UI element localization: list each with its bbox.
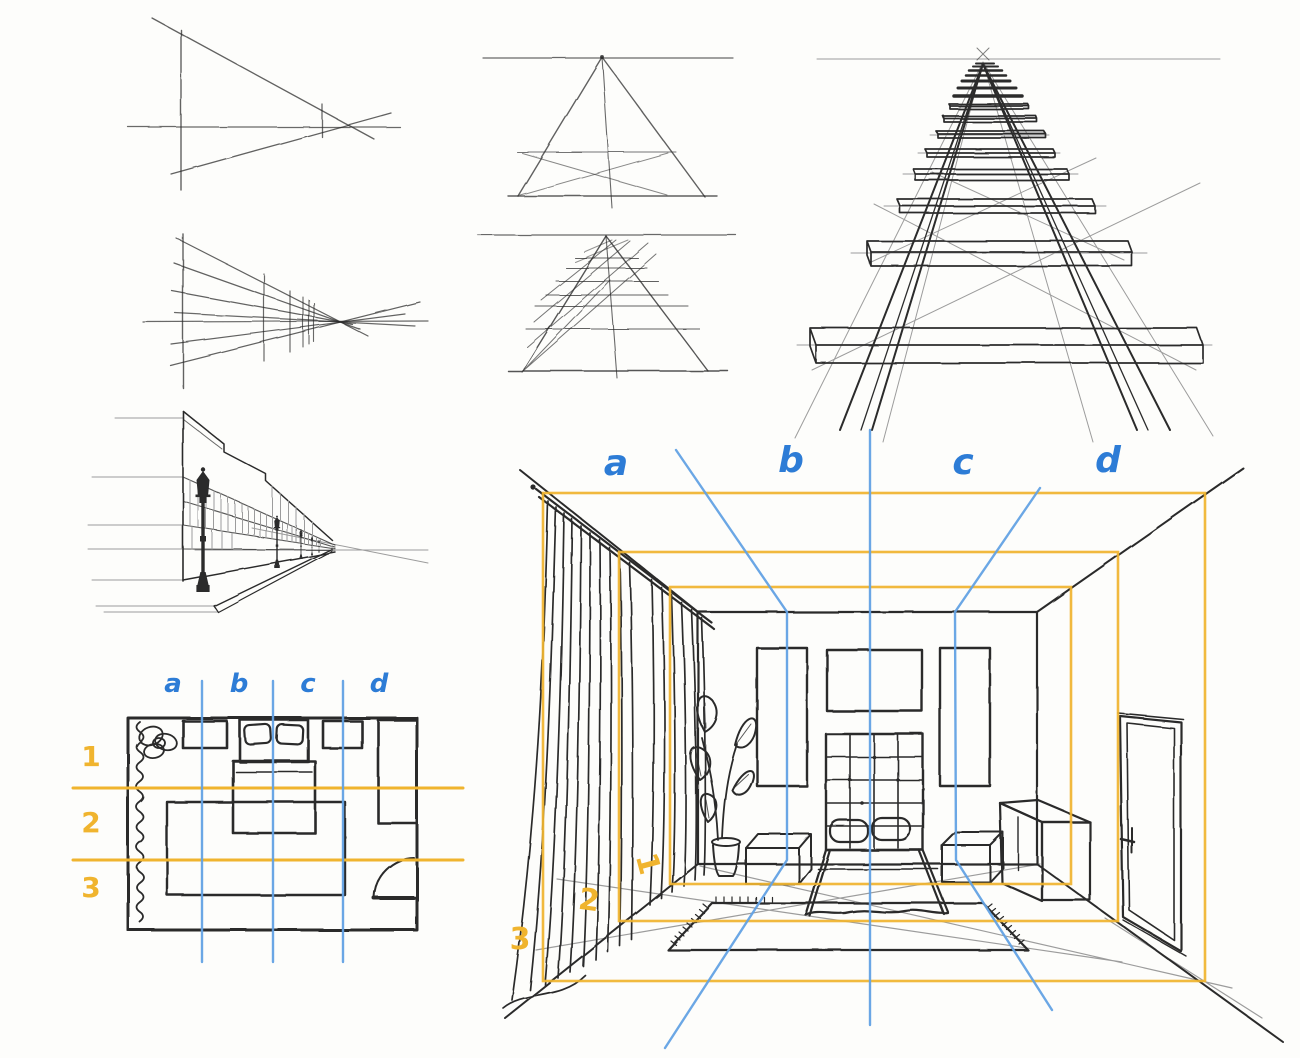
sketch-horizon-study: [128, 18, 400, 190]
street-construction-lines: [88, 418, 428, 612]
bed: [806, 734, 948, 916]
plan-closet: [378, 720, 417, 823]
railroad-ties-far: [954, 64, 1022, 97]
plan-nightstand: [183, 721, 227, 748]
plan-column-label-b: b: [230, 671, 249, 697]
rug: [668, 897, 1028, 950]
pillow: [830, 820, 868, 842]
sketch-street-perspective: [88, 411, 428, 612]
sketch-triangle-grid: [483, 55, 733, 208]
dresser: [1000, 800, 1090, 901]
plan-pillow: [276, 724, 303, 744]
curtains: [503, 484, 714, 1008]
room-row-label-2: 2: [577, 885, 602, 918]
nightstand-left: [746, 834, 811, 884]
pillow: [872, 818, 910, 840]
plan-pillow: [244, 724, 271, 745]
perspective-tutorial-sheet: a b c d 1 2 3 a b c d 1 2 3: [0, 0, 1300, 1058]
storefront-windows: [192, 526, 232, 549]
nightstand-right: [942, 832, 1003, 882]
tutorial-canvas: [0, 0, 1300, 1058]
sidewalk: [214, 549, 332, 612]
room-column-label-d: d: [1095, 443, 1121, 479]
plan-curtain-wave: [137, 722, 144, 922]
sketch-vanishing-rays: [143, 234, 428, 388]
sketch-railroad-tracks: [795, 48, 1220, 442]
plan-column-label-a: a: [164, 671, 182, 697]
room-column-label-a: a: [604, 446, 628, 482]
plan-row-label-1: 1: [81, 743, 100, 771]
plan-row-label-2: 2: [81, 809, 100, 837]
room-floor-construction: [536, 864, 1262, 1018]
plan-column-label-d: d: [370, 671, 389, 697]
room-row-label-3: 3: [510, 925, 531, 955]
door: [1118, 713, 1186, 956]
floor-plan: [73, 681, 463, 962]
plan-column-label-c: c: [300, 671, 315, 697]
room-column-label-c: c: [952, 445, 973, 481]
plan-door: [374, 858, 414, 898]
room-column-guides: [665, 430, 1052, 1048]
sketch-tie-spacing: [478, 235, 736, 378]
plan-rug: [167, 802, 345, 895]
room-column-label-b: b: [778, 443, 804, 479]
plan-row-label-3: 3: [81, 874, 100, 902]
room-perspective: [503, 430, 1283, 1048]
